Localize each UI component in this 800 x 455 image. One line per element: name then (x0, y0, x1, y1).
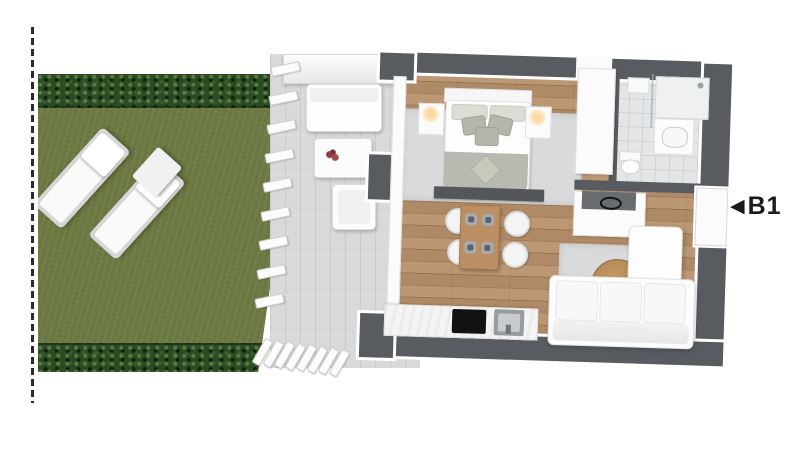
unit-marker-b1: ◀ B1 (730, 192, 782, 221)
sofa-seat-cushion (599, 282, 642, 323)
sofa-main (547, 275, 695, 350)
dining-table (459, 204, 501, 270)
place-setting (465, 213, 477, 225)
kitchen-sink (494, 309, 525, 336)
bathroom-wall-cabinet (627, 77, 649, 94)
left-arrow-icon: ◀ (730, 197, 745, 216)
flower-decoration (324, 149, 340, 163)
property-boundary-dashed-line (31, 27, 34, 403)
wardrobe (575, 68, 616, 175)
bathroom-sink-vanity (653, 118, 694, 155)
place-setting (482, 214, 494, 226)
kitchen-faucet (506, 325, 511, 334)
outdoor-coffee-table (314, 138, 372, 178)
bed-cushion (475, 127, 500, 147)
outdoor-sofa (306, 84, 382, 132)
sofa-backrest (552, 320, 689, 344)
floorplan-canvas: ◀ B1 (0, 0, 800, 455)
outdoor-chair-cushion (338, 190, 370, 224)
sink-basin (662, 126, 689, 148)
apartment-unit (367, 45, 741, 368)
hedge-bottom (38, 343, 300, 372)
sofa-seat-cushion (555, 280, 598, 321)
garden-lawn (38, 74, 300, 372)
outdoor-sofa-back (310, 88, 378, 102)
place-setting (464, 241, 476, 253)
sofa-seat-cushion (643, 283, 686, 324)
unit-label: B1 (748, 192, 782, 221)
hedge-top (38, 74, 300, 108)
cooktop (452, 309, 487, 334)
entrance-door (695, 187, 729, 246)
place-setting (481, 242, 493, 254)
